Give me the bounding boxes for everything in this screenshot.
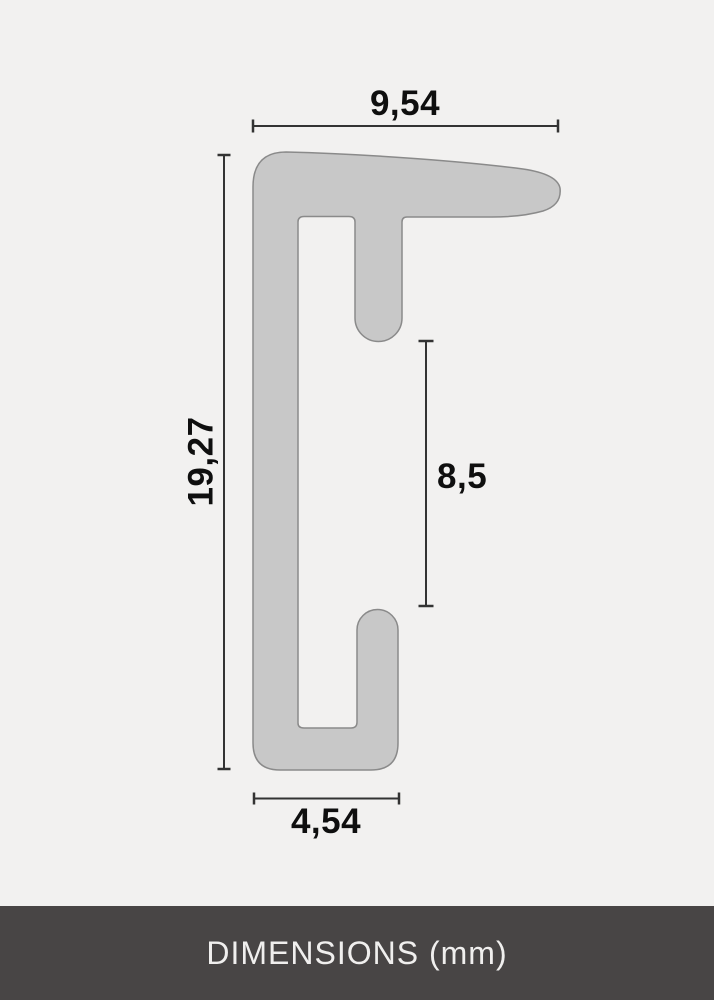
footer-title: DIMENSIONS (mm) <box>206 937 507 969</box>
dim-label-inner-depth: 8,5 <box>437 459 537 494</box>
footer-bar: DIMENSIONS (mm) <box>0 906 714 1000</box>
dim-line-inner-depth <box>419 341 434 606</box>
dimension-diagram-page: 9,54 19,27 8,5 4,54 DIMENSIONS (mm) <box>0 0 714 1000</box>
dim-label-top-width: 9,54 <box>325 86 485 121</box>
dim-label-left-height: 19,27 <box>184 382 219 542</box>
dim-label-bottom-width: 4,54 <box>246 804 406 839</box>
profile-diagram-canvas <box>0 0 714 1000</box>
